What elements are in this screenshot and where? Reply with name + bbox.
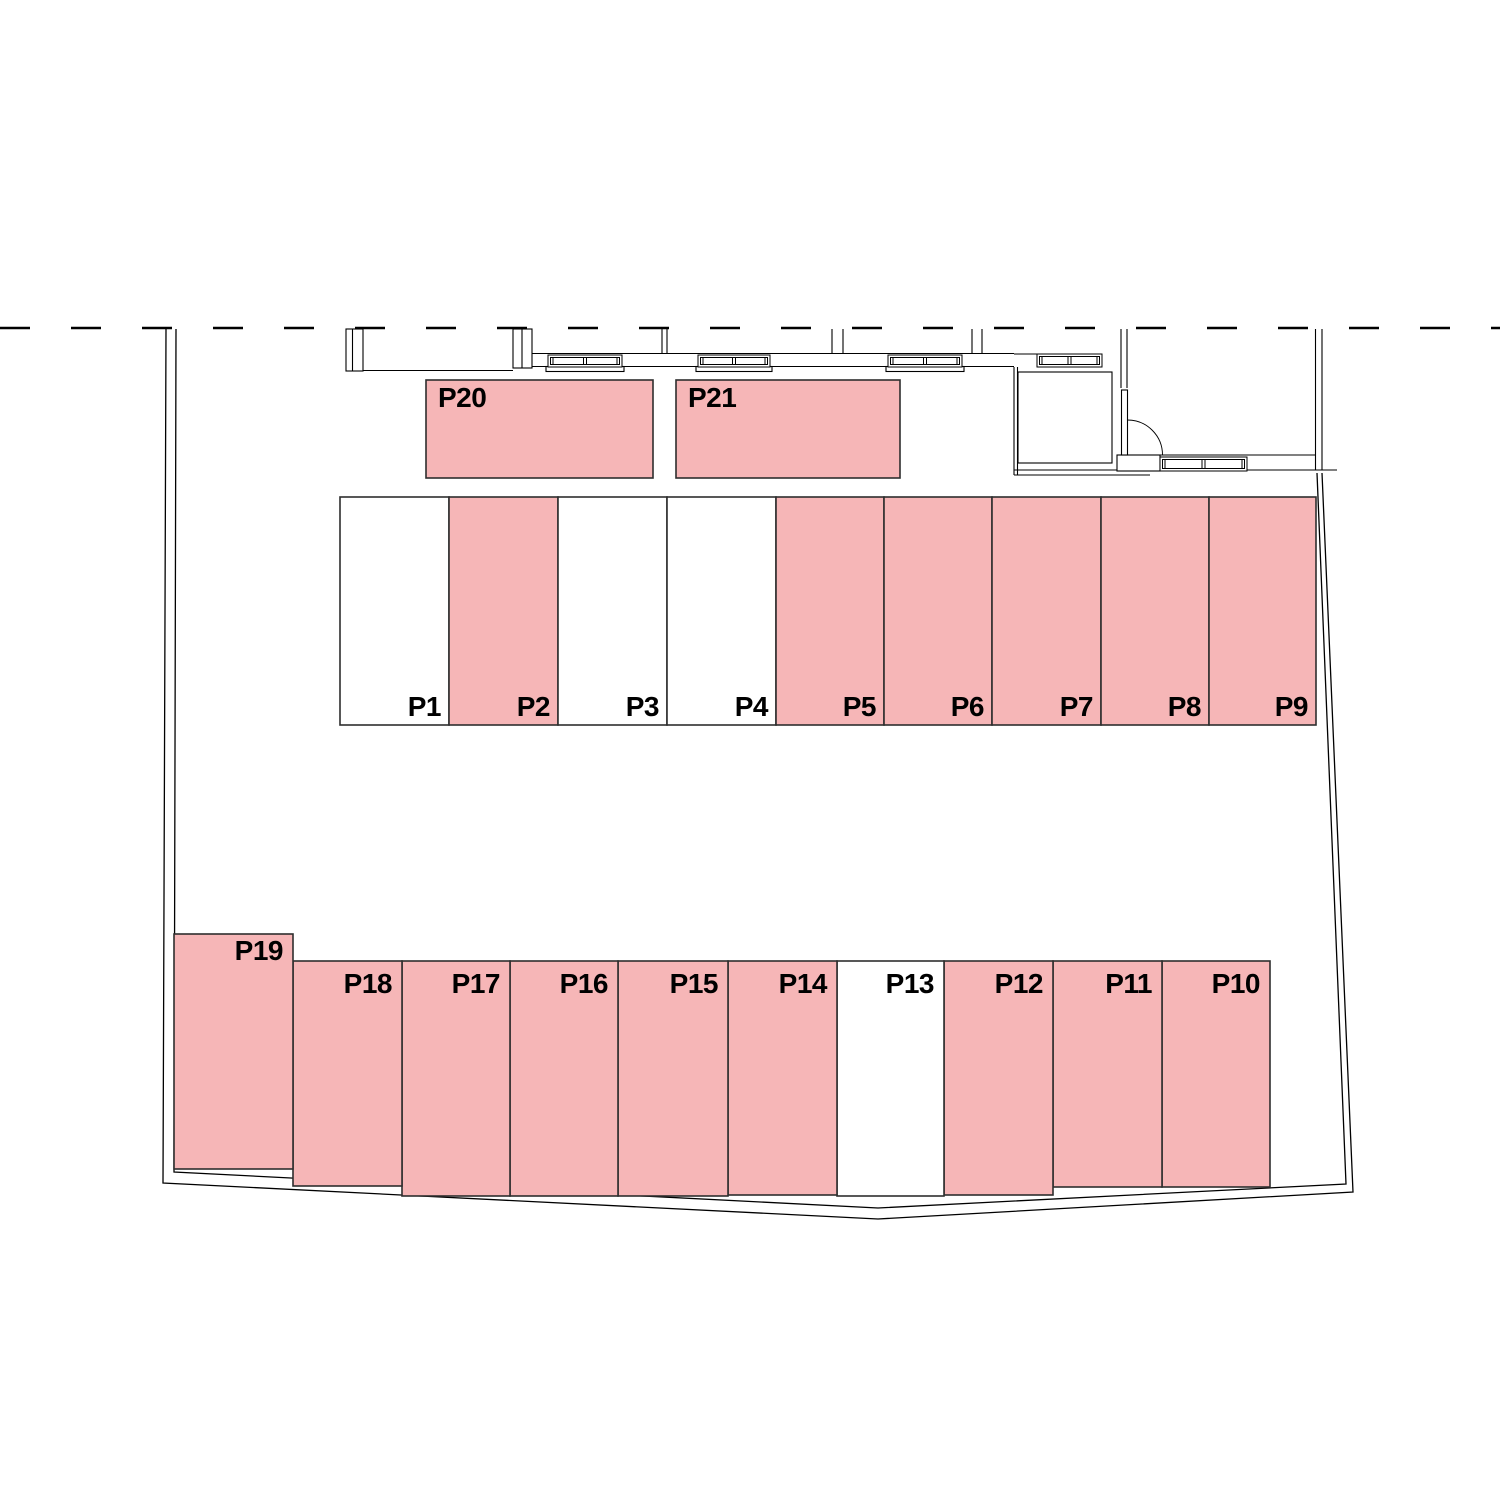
window-sill <box>548 355 622 367</box>
stall-label-P14: P14 <box>779 968 828 999</box>
stall-label-P11: P11 <box>1105 968 1152 999</box>
stall-label-P6: P6 <box>951 691 984 722</box>
site-plan-canvas: P1P2P3P4P5P6P7P8P9P10P11P12P13P14P15P16P… <box>0 0 1500 1500</box>
stall-label-P12: P12 <box>995 968 1043 999</box>
stall-label-P20: P20 <box>438 382 486 413</box>
stall-label-P21: P21 <box>688 382 736 413</box>
stall-label-P3: P3 <box>626 691 659 722</box>
stall-label-P5: P5 <box>843 691 876 722</box>
courtyard-room <box>1018 372 1112 463</box>
stall-label-P9: P9 <box>1275 691 1308 722</box>
parking-stalls <box>174 380 1316 1196</box>
stall-label-P8: P8 <box>1168 691 1201 722</box>
site-plan-page: P1P2P3P4P5P6P7P8P9P10P11P12P13P14P15P16P… <box>0 0 1500 1500</box>
stall-label-P17: P17 <box>452 968 500 999</box>
stall-label-P16: P16 <box>560 968 608 999</box>
window-sill <box>698 355 770 367</box>
stall-label-P10: P10 <box>1212 968 1260 999</box>
stall-label-P15: P15 <box>670 968 718 999</box>
door-threshold <box>1117 455 1160 471</box>
door-leaf <box>1122 390 1128 455</box>
stall-label-P7: P7 <box>1060 691 1093 722</box>
door-swing-arc <box>1128 420 1163 455</box>
stall-label-P13: P13 <box>886 968 934 999</box>
stall-label-P2: P2 <box>517 691 550 722</box>
window-sill <box>888 355 962 367</box>
window-sill <box>1037 354 1102 367</box>
stall-label-P18: P18 <box>344 968 392 999</box>
stall-label-P19: P19 <box>235 935 283 966</box>
wall-pier <box>346 329 363 371</box>
stall-label-P4: P4 <box>735 691 769 722</box>
window-sill <box>1160 457 1247 471</box>
parking-stall-P19[interactable] <box>174 934 293 1169</box>
stall-label-P1: P1 <box>408 691 441 722</box>
